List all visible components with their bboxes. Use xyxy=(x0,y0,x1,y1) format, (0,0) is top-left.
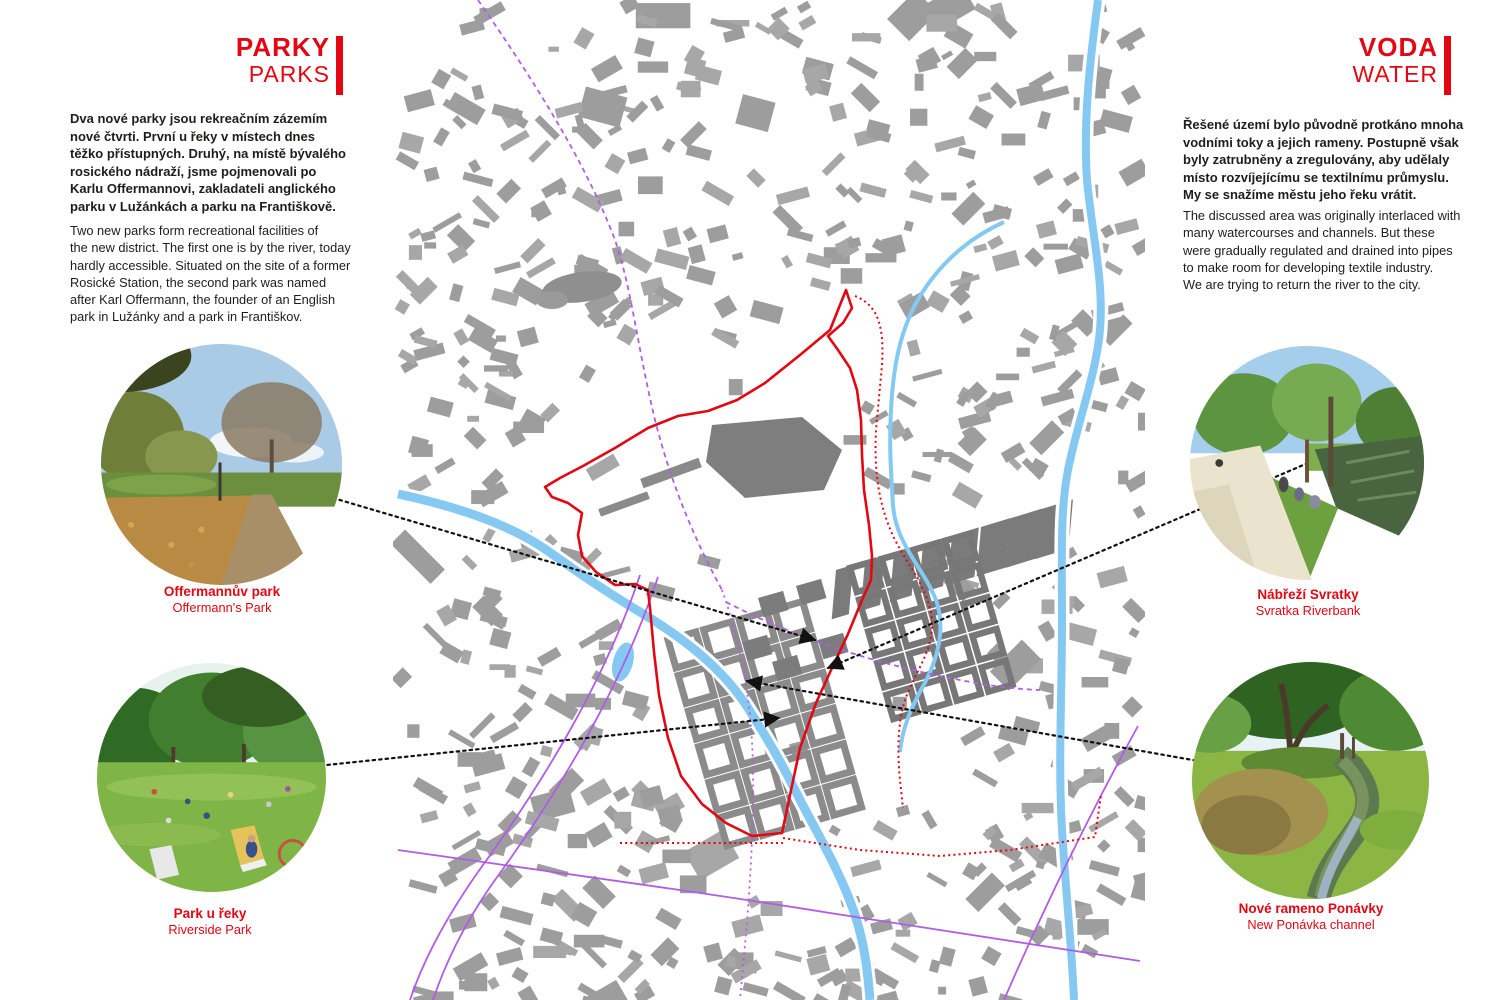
caption-offermann: Offermannův park Offermann's Park xyxy=(96,584,348,616)
caption-ponavka-cz: Nové rameno Ponávky xyxy=(1185,901,1437,917)
riverbank-illustration xyxy=(1190,346,1424,580)
right-title-cz: VODA xyxy=(1210,33,1438,61)
right-panel-header: VODA WATER xyxy=(1210,33,1438,87)
channel-illustration xyxy=(1192,662,1429,899)
presentation-board: PARKY PARKS Dva nové parky jsou rekreačn… xyxy=(0,0,1500,1000)
caption-ponavka: Nové rameno Ponávky New Ponávka channel xyxy=(1185,901,1437,933)
left-paragraph-english: Two new parks form recreational faciliti… xyxy=(70,222,388,326)
left-header-bar xyxy=(336,36,343,95)
photo-offermannuv-park xyxy=(101,344,342,585)
photo-nove-rameno-ponavky xyxy=(1192,662,1429,899)
left-paragraph-czech: Dva nové parky jsou rekreačním zázemím n… xyxy=(70,110,388,216)
left-title-en: PARKS xyxy=(100,61,330,87)
caption-riverside: Park u řeky Riverside Park xyxy=(84,906,336,938)
caption-svratka-en: Svratka Riverbank xyxy=(1182,603,1434,619)
landmark-masses xyxy=(536,267,842,517)
boundary-dotted-extension xyxy=(620,296,1101,856)
autumn-park-illustration xyxy=(101,344,342,585)
right-paragraph-english: The discussed area was originally interl… xyxy=(1183,207,1483,293)
caption-offermann-cz: Offermannův park xyxy=(96,584,348,600)
photo-park-u-reky xyxy=(97,663,326,892)
caption-svratka-cz: Nábřeží Svratky xyxy=(1182,587,1434,603)
right-title-en: WATER xyxy=(1210,61,1438,87)
caption-riverside-en: Riverside Park xyxy=(84,922,336,938)
caption-ponavka-en: New Ponávka channel xyxy=(1185,917,1437,933)
caption-riverside-cz: Park u řeky xyxy=(84,906,336,922)
summer-park-illustration xyxy=(97,663,326,892)
caption-offermann-en: Offermann's Park xyxy=(96,600,348,616)
photo-nabrezi-svratky xyxy=(1190,346,1424,580)
right-header-bar xyxy=(1444,36,1451,95)
caption-svratka: Nábřeží Svratky Svratka Riverbank xyxy=(1182,587,1434,619)
right-paragraph-czech: Řešené území bylo původně protkáno mnoha… xyxy=(1183,116,1483,204)
left-panel-header: PARKY PARKS xyxy=(100,33,330,87)
left-title-cz: PARKY xyxy=(100,33,330,61)
buildings-layer xyxy=(391,0,1162,1000)
